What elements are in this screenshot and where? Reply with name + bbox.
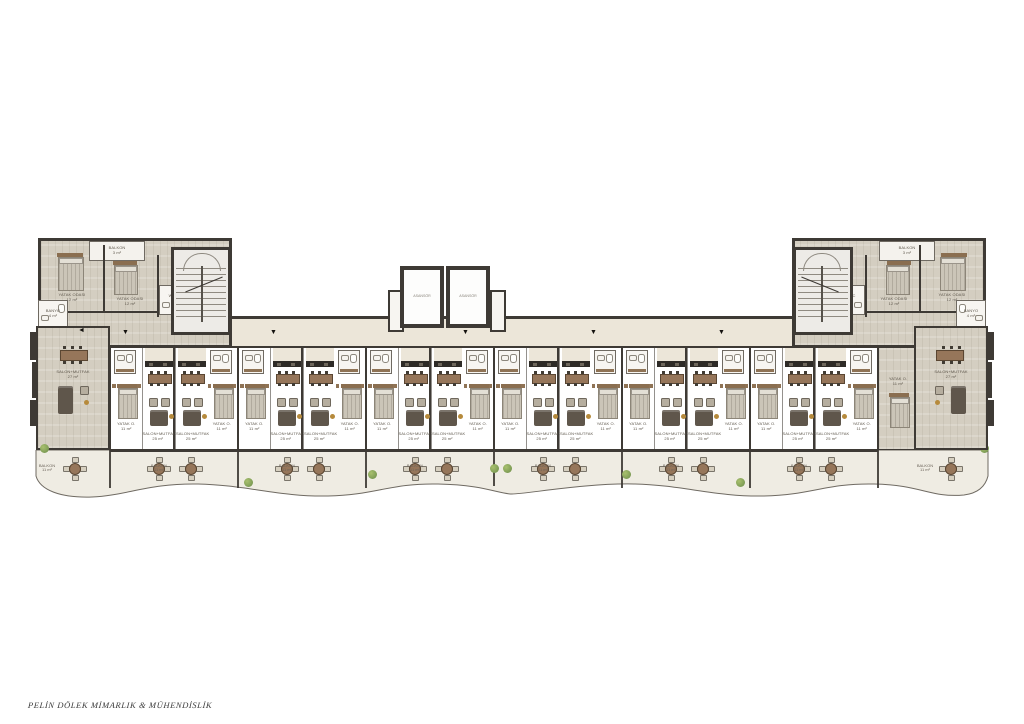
side-table xyxy=(809,414,814,419)
apartment-unit: YATAK O.11 m² SALON+MUTFAK25 m² xyxy=(366,346,430,452)
round-table-icon xyxy=(569,463,581,475)
bed-pillow xyxy=(599,389,617,395)
chair-icon xyxy=(796,475,803,481)
toilet-icon xyxy=(638,354,645,363)
kitchen-sink-icon xyxy=(675,363,679,366)
side-table xyxy=(553,414,558,419)
sofa xyxy=(311,410,329,426)
balcony-table-set xyxy=(563,457,585,479)
living-column: SALON+MUTFAK25 m² xyxy=(398,348,430,450)
armchair xyxy=(149,398,158,407)
bedroom-column: YATAK O.11 m² xyxy=(463,348,494,450)
round-table-icon xyxy=(945,463,957,475)
nightstand xyxy=(208,384,212,388)
end-living-room: SALON+MUTFAK27 m² xyxy=(36,326,110,450)
nightstand xyxy=(464,384,468,388)
bath-counter xyxy=(500,369,518,373)
armchair xyxy=(935,386,944,395)
armchair xyxy=(450,398,459,407)
bedroom-column: YATAK O.11 m² xyxy=(719,348,750,450)
armchair xyxy=(673,398,682,407)
bath-counter xyxy=(340,369,358,373)
chair-icon xyxy=(80,466,87,472)
side-table xyxy=(842,414,847,419)
chair-icon xyxy=(316,475,323,481)
entry-arrow-icon: ▼ xyxy=(462,329,469,336)
apartment-unit: YATAK O.11 m² SALON+MUTFAK25 m² xyxy=(750,346,814,452)
living-column: SALON+MUTFAK25 m² xyxy=(270,348,302,450)
unit-bathroom xyxy=(498,350,520,374)
room-label: SALON+MUTFAK27 m² xyxy=(916,370,986,379)
living-label: SALON+MUTFAK25 m² xyxy=(655,432,686,441)
sofa xyxy=(823,410,841,426)
chair-icon xyxy=(828,475,835,481)
sofa xyxy=(183,410,201,426)
architect-signature: PELİN DÖLEK MİMARLIK & MÜHENDİSLİK xyxy=(28,700,213,710)
nightstand xyxy=(649,384,653,388)
bed-pillow xyxy=(343,389,361,395)
living-label: SALON+MUTFAK25 m² xyxy=(399,432,430,441)
sink-icon xyxy=(853,355,861,361)
sofa xyxy=(790,410,808,426)
bed xyxy=(117,384,137,418)
round-table-icon xyxy=(313,463,325,475)
stair-divider xyxy=(201,266,203,322)
bed xyxy=(373,384,393,418)
bed xyxy=(113,261,137,295)
living-label: SALON+MUTFAK25 m² xyxy=(783,432,814,441)
bedroom-label: YATAK O.11 m² xyxy=(495,422,526,431)
chair-icon xyxy=(948,475,955,481)
living-label: SALON+MUTFAK25 m² xyxy=(688,432,719,441)
bedroom-column: YATAK O.11 m² xyxy=(111,348,142,450)
side-table xyxy=(681,414,686,419)
bed-pillow xyxy=(503,389,521,395)
armchair xyxy=(405,398,414,407)
facade-step xyxy=(30,332,37,360)
side-table xyxy=(297,414,302,419)
sofa xyxy=(567,410,585,426)
chair-icon xyxy=(956,466,963,472)
apartment-unit: YATAK O.11 m² SALON+MUTFAK25 m² xyxy=(110,346,174,452)
sink-icon xyxy=(629,355,637,361)
nightstand xyxy=(745,384,749,388)
living-column: SALON+MUTFAK25 m² xyxy=(431,348,463,450)
bedroom-column: YATAK O.11 m² xyxy=(751,348,782,450)
nightstand xyxy=(720,384,724,388)
nightstand xyxy=(624,384,628,388)
plant-icon xyxy=(503,464,512,473)
bed xyxy=(245,384,265,418)
stove-icon xyxy=(789,363,793,366)
end-unit-left: BANYO4 m² SALON+MUTFAK27 m² xyxy=(30,298,114,454)
entry-arrow-icon: ▼ xyxy=(122,329,129,336)
bath-counter xyxy=(756,369,774,373)
bed xyxy=(889,393,909,427)
entry-hall xyxy=(145,348,173,361)
stove-icon xyxy=(694,363,698,366)
sofa xyxy=(662,410,680,426)
entry-hall xyxy=(562,348,590,361)
chair-icon xyxy=(580,466,587,472)
shaft-right-small xyxy=(490,290,506,332)
stove-icon xyxy=(822,363,826,366)
elevator-cell: ASANSÖR xyxy=(446,266,490,328)
elevator-cell: ASANSÖR xyxy=(400,266,444,328)
entry-arrow-icon: ▼ xyxy=(718,329,725,336)
armchair xyxy=(834,398,843,407)
armchair xyxy=(438,398,447,407)
bedroom-label: YATAK O.11 m² xyxy=(239,422,270,431)
apartment-unit: YATAK O.11 m² SALON+MUTFAK25 m² xyxy=(302,346,366,452)
chair-icon xyxy=(668,475,675,481)
kitchen-sink-icon xyxy=(580,363,584,366)
bath-counter xyxy=(596,369,614,373)
armchair xyxy=(322,398,331,407)
apartment-unit: YATAK O.11 m² SALON+MUTFAK25 m² xyxy=(558,346,622,452)
side-table xyxy=(586,414,591,419)
side-table xyxy=(202,414,207,419)
floor-plan-sheet: YATAK O.11 m² YATAK O.11 m² ASANSÖR ASAN… xyxy=(0,0,1024,724)
bedroom-column: YATAK O.11 m² xyxy=(591,348,622,450)
nightstand xyxy=(265,384,269,388)
apartment-unit: YATAK O.11 m² SALON+MUTFAK25 m² xyxy=(686,346,750,452)
entry-hall xyxy=(434,348,462,361)
kitchen-sink-icon xyxy=(547,363,551,366)
bedroom-label: YATAK O.11 m² xyxy=(623,422,654,431)
nightstand xyxy=(752,384,756,388)
elevator-label: ASANSÖR xyxy=(404,294,440,298)
bed-pillow xyxy=(215,389,233,395)
unit-bathroom xyxy=(338,350,360,374)
entry-hall xyxy=(529,348,557,361)
bedroom-label: YATAK O.11 m² xyxy=(719,422,750,431)
plant-icon xyxy=(490,464,499,473)
chair-icon xyxy=(700,475,707,481)
apartment-unit: YATAK O.11 m² SALON+MUTFAK25 m² xyxy=(238,346,302,452)
nightstand xyxy=(393,384,397,388)
sink-icon xyxy=(501,355,509,361)
nightstand xyxy=(496,384,500,388)
entry-hall xyxy=(178,348,206,361)
end-bathroom: BANYO4 m² xyxy=(956,300,986,328)
sink-icon xyxy=(597,355,605,361)
bedroom-column: YATAK O.11 m² xyxy=(623,348,654,450)
armchair xyxy=(694,398,703,407)
round-table-icon xyxy=(185,463,197,475)
bath-counter xyxy=(628,369,646,373)
armchair xyxy=(578,398,587,407)
side-table xyxy=(458,414,463,419)
facade-step xyxy=(30,400,38,426)
chair-icon xyxy=(708,466,715,472)
end-bathroom: BANYO4 m² xyxy=(38,300,68,328)
bath-counter xyxy=(724,369,742,373)
armchair xyxy=(194,398,203,407)
stove-icon xyxy=(566,363,570,366)
stair-divider xyxy=(821,266,823,322)
entry-hall xyxy=(690,348,718,361)
side-table xyxy=(330,414,335,419)
unit-bathroom xyxy=(754,350,776,374)
armchair xyxy=(801,398,810,407)
plant-icon xyxy=(368,470,377,479)
sofa xyxy=(439,410,457,426)
bath-counter xyxy=(212,369,230,373)
unit-bathroom xyxy=(210,350,232,374)
sofa xyxy=(534,410,552,426)
kitchen-sink-icon xyxy=(419,363,423,366)
unit-bathroom xyxy=(626,350,648,374)
bedroom-column: YATAK O.11 m² xyxy=(239,348,270,450)
facade-step xyxy=(986,400,994,426)
chair-icon xyxy=(412,475,419,481)
nightstand xyxy=(848,384,852,388)
bedroom-label: YATAK O.11 m² xyxy=(335,422,366,431)
apartment-unit: YATAK O.11 m² SALON+MUTFAK25 m² xyxy=(814,346,878,452)
sofa xyxy=(695,410,713,426)
chair-icon xyxy=(452,466,459,472)
side-table xyxy=(169,414,174,419)
armchair xyxy=(310,398,319,407)
bed-pillow xyxy=(759,389,777,395)
armchair xyxy=(533,398,542,407)
living-column: SALON+MUTFAK25 m² xyxy=(175,348,207,450)
nightstand xyxy=(336,384,340,388)
armchair xyxy=(277,398,286,407)
plant-icon xyxy=(40,444,49,453)
bedroom-column: YATAK O.11 m² xyxy=(367,348,398,450)
chair-icon xyxy=(284,475,291,481)
bath-counter xyxy=(852,369,870,373)
unit-bathroom xyxy=(370,350,392,374)
bed xyxy=(213,384,233,418)
kitchen-sink-icon xyxy=(291,363,295,366)
bed xyxy=(629,384,649,418)
armchair xyxy=(417,398,426,407)
stove-icon xyxy=(310,363,314,366)
sink-icon xyxy=(373,355,381,361)
bed xyxy=(469,384,489,418)
armchair xyxy=(789,398,798,407)
balcony-label: BALKON11 m² xyxy=(530,464,556,473)
balcony-band xyxy=(30,450,994,504)
chair-icon xyxy=(836,466,843,472)
sink-icon xyxy=(245,355,253,361)
toilet-icon xyxy=(350,354,357,363)
bedroom-label: YATAK O.11 m² xyxy=(111,422,142,431)
plant-icon xyxy=(244,478,253,487)
toilet-icon xyxy=(382,354,389,363)
kitchen-sink-icon xyxy=(163,363,167,366)
unit-bathroom xyxy=(594,350,616,374)
living-label: SALON+MUTFAK25 m² xyxy=(304,432,335,441)
toilet-icon xyxy=(126,354,133,363)
apartment-unit: YATAK O.11 m² SALON+MUTFAK25 m² xyxy=(622,346,686,452)
side-table xyxy=(84,400,89,405)
balcony-table-set xyxy=(307,457,329,479)
bedroom-label: YATAK O.11 m² xyxy=(207,422,238,431)
living-label: SALON+MUTFAK25 m² xyxy=(560,432,591,441)
end-living-room: SALON+MUTFAK27 m² xyxy=(914,326,988,450)
toilet-icon xyxy=(862,354,869,363)
bed-pillow xyxy=(471,389,489,395)
armchair xyxy=(566,398,575,407)
room-label: SALON+MUTFAK27 m² xyxy=(38,370,108,379)
wing-wall xyxy=(866,255,868,317)
dining-table xyxy=(60,350,88,361)
kitchen-sink-icon xyxy=(196,363,200,366)
plant-icon xyxy=(736,478,745,487)
bath-label: BANYO4 m² xyxy=(39,309,67,318)
bed-pillow xyxy=(119,389,137,395)
balcony-label: BALKON3 m² xyxy=(90,246,144,255)
living-column: SALON+MUTFAK25 m² xyxy=(782,348,814,450)
stove-icon xyxy=(149,363,153,366)
balcony-table-set xyxy=(63,457,85,479)
bed-pillow xyxy=(855,389,873,395)
living-column: SALON+MUTFAK25 m² xyxy=(559,348,591,450)
armchair xyxy=(706,398,715,407)
bedroom-column: YATAK O.11 m² xyxy=(207,348,238,450)
nightstand xyxy=(233,384,237,388)
bed xyxy=(887,261,911,295)
balcony-table-set xyxy=(819,457,841,479)
elevator-label: ASANSÖR xyxy=(450,294,486,298)
toilet-icon xyxy=(766,354,773,363)
end-unit-right: BANYO4 m² SALON+MUTFAK27 m² xyxy=(910,298,994,454)
toilet-icon xyxy=(734,354,741,363)
living-label: SALON+MUTFAK25 m² xyxy=(816,432,847,441)
facade-step xyxy=(987,332,994,360)
round-table-icon xyxy=(825,463,837,475)
kitchen-sink-icon xyxy=(452,363,456,366)
stove-icon xyxy=(405,363,409,366)
chair-icon xyxy=(196,466,203,472)
bedroom-column: YATAK O.11 m² xyxy=(335,348,366,450)
sink-icon xyxy=(469,355,477,361)
living-label: SALON+MUTFAK25 m² xyxy=(143,432,174,441)
chair-icon xyxy=(324,466,331,472)
entry-hall xyxy=(401,348,429,361)
nightstand xyxy=(137,384,141,388)
balcony-label: BALKON11 m² xyxy=(274,464,300,473)
living-column: SALON+MUTFAK25 m² xyxy=(687,348,719,450)
apartment-unit: YATAK O.11 m² SALON+MUTFAK25 m² xyxy=(174,346,238,452)
balcony-table-set xyxy=(939,457,961,479)
nightstand xyxy=(521,384,525,388)
bedroom-label: YATAK O.11 m² xyxy=(847,422,878,431)
kitchen-sink-icon xyxy=(836,363,840,366)
balcony-label: BALKON11 m² xyxy=(912,464,938,473)
nightstand xyxy=(617,384,621,388)
balcony-table-set xyxy=(691,457,713,479)
living-label: SALON+MUTFAK25 m² xyxy=(176,432,207,441)
sofa xyxy=(278,410,296,426)
entry-hall xyxy=(273,348,301,361)
nightstand xyxy=(489,384,493,388)
bed-pillow xyxy=(375,389,393,395)
bed xyxy=(853,384,873,418)
stair-treads xyxy=(798,268,848,320)
bed xyxy=(501,384,521,418)
toilet-icon xyxy=(254,354,261,363)
entry-hall xyxy=(818,348,846,361)
armchair xyxy=(661,398,670,407)
sink-icon xyxy=(117,355,125,361)
bed xyxy=(57,253,83,287)
balcony-label: BALKON11 m² xyxy=(786,464,812,473)
balcony-table-set xyxy=(179,457,201,479)
sink-icon xyxy=(725,355,733,361)
bed xyxy=(341,384,361,418)
balcony-label: BALKON3 m² xyxy=(880,246,934,255)
side-table xyxy=(935,400,940,405)
living-column: SALON+MUTFAK25 m² xyxy=(815,348,847,450)
nightstand xyxy=(368,384,372,388)
sink-icon xyxy=(757,355,765,361)
nightstand xyxy=(777,384,781,388)
plant-icon xyxy=(622,470,631,479)
wing-top-balcony: BALKON3 m² xyxy=(89,241,145,261)
round-table-icon xyxy=(69,463,81,475)
building-floor-plan: YATAK O.11 m² YATAK O.11 m² ASANSÖR ASAN… xyxy=(0,0,1024,724)
balcony-table-set xyxy=(435,457,457,479)
armchair xyxy=(545,398,554,407)
living-column: SALON+MUTFAK25 m² xyxy=(526,348,558,450)
toilet-icon xyxy=(222,354,229,363)
nightstand xyxy=(873,384,877,388)
bath-counter xyxy=(244,369,262,373)
bedroom-label: YATAK O.11 m² xyxy=(463,422,494,431)
sink-icon xyxy=(341,355,349,361)
sofa xyxy=(951,386,966,414)
nightstand xyxy=(361,384,365,388)
side-table xyxy=(425,414,430,419)
bedroom-label: YATAK O.11 m² xyxy=(751,422,782,431)
entry-arrow-icon: ▼ xyxy=(590,329,597,336)
stairwell xyxy=(793,247,853,335)
entry-hall xyxy=(785,348,813,361)
kitchen-sink-icon xyxy=(324,363,328,366)
chair-icon xyxy=(72,475,79,481)
armchair xyxy=(822,398,831,407)
bedroom-label: YATAK O.11 m² xyxy=(591,422,622,431)
entry-arrow-icon: ◄ xyxy=(78,327,85,334)
round-table-icon xyxy=(697,463,709,475)
living-column: SALON+MUTFAK25 m² xyxy=(303,348,335,450)
armchair xyxy=(80,386,89,395)
toilet-icon xyxy=(478,354,485,363)
stove-icon xyxy=(661,363,665,366)
unit-bathroom xyxy=(722,350,744,374)
facade-step xyxy=(32,362,37,398)
chair-icon xyxy=(156,475,163,481)
bedroom-label: YATAK O.11 m² xyxy=(367,422,398,431)
dining-table xyxy=(936,350,964,361)
stairwell xyxy=(171,247,231,335)
bedroom-column: YATAK O.11 m² xyxy=(847,348,878,450)
round-table-icon xyxy=(441,463,453,475)
unit-bathroom xyxy=(850,350,872,374)
stove-icon xyxy=(277,363,281,366)
living-label: SALON+MUTFAK25 m² xyxy=(527,432,558,441)
balcony-label: BALKON11 m² xyxy=(402,464,428,473)
elevator-core: ASANSÖR ASANSÖR xyxy=(388,262,502,332)
bath-counter xyxy=(468,369,486,373)
unit-bathroom xyxy=(466,350,488,374)
entry-arrow-icon: ▼ xyxy=(270,329,277,336)
